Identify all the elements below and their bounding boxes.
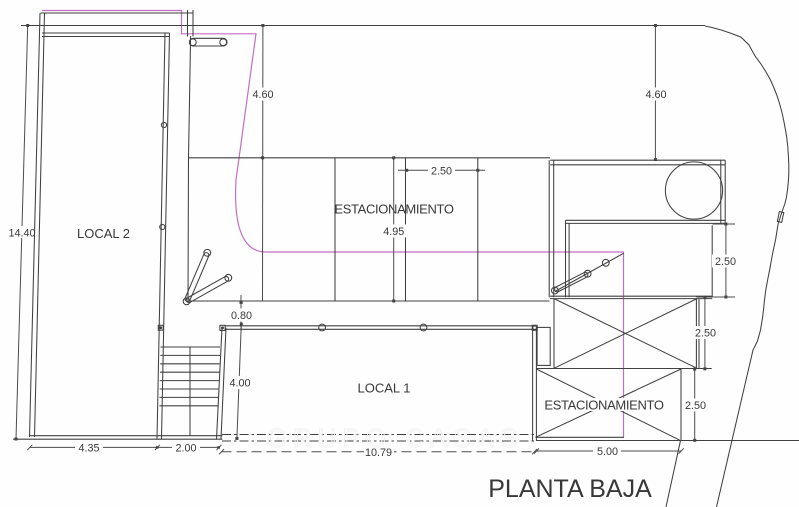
svg-text:4.60: 4.60 xyxy=(645,89,666,101)
svg-text:PLANTA BAJA: PLANTA BAJA xyxy=(488,475,652,503)
svg-text:4.35: 4.35 xyxy=(78,443,99,455)
svg-text:14.40: 14.40 xyxy=(8,228,35,240)
svg-text:2.50: 2.50 xyxy=(431,166,452,178)
svg-text:2.50: 2.50 xyxy=(685,400,706,412)
svg-text:GRUPO CASAS: GRUPO CASAS xyxy=(267,423,524,453)
svg-text:LOCAL 1: LOCAL 1 xyxy=(358,381,411,396)
svg-text:4.60: 4.60 xyxy=(252,89,273,101)
svg-text:4.00: 4.00 xyxy=(229,378,250,390)
svg-text:5.00: 5.00 xyxy=(597,446,618,458)
svg-text:ESTACIONAMIENTO: ESTACIONAMIENTO xyxy=(544,398,663,413)
svg-text:0.80: 0.80 xyxy=(231,310,252,322)
svg-text:2.50: 2.50 xyxy=(715,256,736,268)
svg-text:4.95: 4.95 xyxy=(383,226,404,238)
svg-text:2.00: 2.00 xyxy=(175,443,196,455)
svg-text:LOCAL 2: LOCAL 2 xyxy=(77,226,130,241)
svg-text:2.50: 2.50 xyxy=(695,328,716,340)
